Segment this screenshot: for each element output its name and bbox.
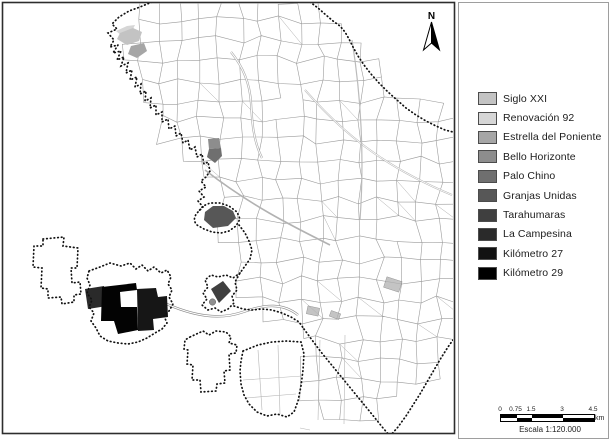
scale-caption: Escala 1:120.000 [500, 425, 600, 434]
legend-item-label: Kilómetro 29 [503, 267, 563, 279]
legend-item-kilometro-27: Kilómetro 27 [459, 244, 608, 263]
scale-bar-block: 00.751.534.5 km Escala 1:120.000 [500, 406, 608, 434]
legend-swatch [478, 267, 497, 280]
scale-tick-labels: 00.751.534.5 [500, 406, 608, 414]
settlement-marker [209, 299, 215, 305]
scale-tick-label: 1.5 [520, 406, 542, 413]
legend-item-label: Palo Chino [503, 170, 555, 182]
legend-item-label: Tarahumaras [503, 209, 565, 221]
legend-item-label: Kilómetro 27 [503, 248, 563, 260]
legend-panel: Siglo XXIRenovación 92Estrella del Ponie… [458, 2, 609, 439]
legend-item-estrella-del-poniente: Estrella del Poniente [459, 128, 608, 147]
legend-item-siglo-xxi: Siglo XXI [459, 89, 608, 108]
legend-swatch [478, 228, 497, 241]
legend-item-label: Siglo XXI [503, 93, 547, 105]
legend-swatch [478, 92, 497, 105]
legend-item-label: La Campesina [503, 228, 572, 240]
legend-swatch [478, 150, 497, 163]
legend-swatch [478, 209, 497, 222]
scale-tick-label: 4.5 [582, 406, 604, 413]
legend-item-renovacion-92: Renovación 92 [459, 108, 608, 127]
scale-tick-label: 3 [551, 406, 573, 413]
legend-item-bello-horizonte: Bello Horizonte [459, 147, 608, 166]
map-figure: N Siglo XXIRenovación 92Estrella del Pon… [0, 0, 610, 443]
legend-item-label: Granjas Unidas [503, 190, 577, 202]
legend-swatch [478, 189, 497, 202]
legend-swatch [478, 112, 497, 125]
scale-bar-segment [532, 418, 563, 421]
legend-item-tarahumaras: Tarahumaras [459, 205, 608, 224]
scale-bar [500, 414, 595, 422]
north-arrow-label: N [428, 11, 435, 22]
scale-bar-segment [501, 418, 517, 421]
legend-item-label: Renovación 92 [503, 112, 574, 124]
scale-bar-segment [563, 418, 594, 421]
legend-items: Siglo XXIRenovación 92Estrella del Ponie… [459, 89, 608, 283]
scale-unit-label: km [595, 415, 604, 422]
scale-bar-segment [517, 418, 533, 421]
legend-item-granjas-unidas: Granjas Unidas [459, 186, 608, 205]
legend-item-kilometro-29: Kilómetro 29 [459, 264, 608, 283]
legend-swatch [478, 131, 497, 144]
legend-swatch [478, 247, 497, 260]
legend-item-label: Bello Horizonte [503, 151, 576, 163]
legend-swatch [478, 170, 497, 183]
legend-item-la-campesina: La Campesina [459, 225, 608, 244]
legend-item-palo-chino: Palo Chino [459, 167, 608, 186]
legend-item-label: Estrella del Poniente [503, 131, 601, 143]
area-bello-horizonte [208, 138, 221, 149]
